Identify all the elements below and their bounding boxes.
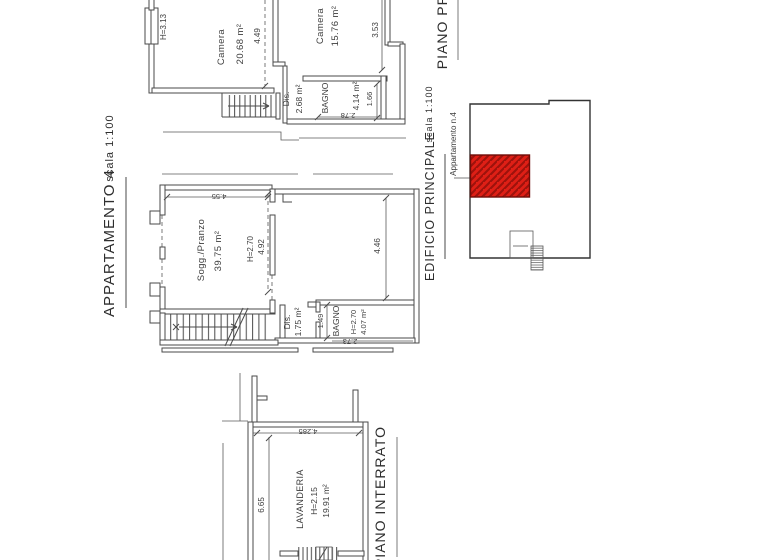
- room-bagno2-height: H=2.70: [349, 310, 358, 334]
- room-sogg-area: 39.75 m²: [213, 231, 224, 272]
- piano-interrato-heading: PIANO INTERRATO: [372, 426, 397, 560]
- dim-273: 2.73: [343, 337, 358, 346]
- floor-plan-sheet: APPARTAMENTO 4 scala 1:100 PIANO PRIMO: [0, 0, 768, 560]
- stair-housing: [510, 231, 533, 258]
- sheet-title: APPARTAMENTO 4 scala 1:100: [101, 114, 126, 317]
- dim-149: 1.49: [316, 314, 325, 329]
- floor-plan-drawing: APPARTAMENTO 4 scala 1:100 PIANO PRIMO: [0, 0, 768, 560]
- stairs-piano-primo: [222, 93, 280, 119]
- plan-piano-primo: Camera 20.68 m² H=3.13 4.49 Camera 15.76…: [145, 0, 406, 140]
- room-bagno2-name: BAGNO: [331, 305, 341, 336]
- dim-455: 4.55: [212, 192, 227, 201]
- room-lavanderia-height: H=2.15: [309, 487, 319, 515]
- room-lavanderia-name: LAVANDERIA: [295, 469, 305, 529]
- room-lavanderia-area: 19.91 m²: [321, 484, 331, 518]
- apartment-callout: Appartamento n.4: [449, 112, 458, 176]
- plan-piano-interrato: LAVANDERIA H=2.15 19.91 m² 6.65 4.285: [222, 373, 368, 560]
- dim-278: 2.78: [341, 111, 356, 120]
- dim-665: 6.65: [257, 497, 266, 513]
- edificio-title: EDIFICIO PRINCIPALE: [423, 131, 437, 281]
- dim-446: 4.46: [373, 238, 382, 254]
- room-bagno1-name: BAGNO: [320, 82, 330, 113]
- edificio-scale: scala 1:100: [424, 85, 434, 142]
- room-dis1-area: 2.68 m²: [294, 84, 304, 113]
- dim-449: 4.49: [253, 28, 262, 44]
- dim-353: 3.53: [371, 22, 380, 38]
- window-height-label: H=3.13: [159, 13, 168, 40]
- room-sogg-height: H=2.70: [246, 235, 255, 262]
- room-dis2-name: Dis.: [282, 315, 292, 330]
- dim-492: 4.92: [257, 239, 266, 255]
- room-dis1-name: Dis.: [281, 92, 291, 107]
- room-camera2-name: Camera: [315, 8, 326, 45]
- room-camera1-name: Camera: [216, 29, 227, 66]
- apartment-highlight: [471, 155, 530, 197]
- room-camera1-area: 20.68 m²: [235, 24, 246, 65]
- apartment-title: APPARTAMENTO 4: [101, 169, 118, 317]
- key-plan: EDIFICIO PRINCIPALE scala 1:100 Appartam…: [423, 85, 590, 281]
- building-exterior-stair: [531, 246, 543, 270]
- dim-166: 1.66: [365, 92, 374, 107]
- plan-middle-floor: Sogg./Pranzo 39.75 m² H=2.70 4.92 4.55 4…: [150, 174, 419, 352]
- stairs-piano-interrato: [280, 547, 364, 560]
- piano-primo-label: PIANO PRIMO: [434, 0, 450, 69]
- apartment-title-scale: scala 1:100: [104, 114, 116, 181]
- room-dis2-area: 1.75 m²: [293, 307, 303, 336]
- room-sogg-name: Sogg./Pranzo: [196, 219, 207, 281]
- room-bagno1-area: 4.14 m²: [351, 81, 361, 110]
- piano-primo-heading: PIANO PRIMO: [434, 0, 458, 69]
- piano-interrato-label: PIANO INTERRATO: [372, 426, 388, 560]
- dim-4285: 4.285: [299, 427, 318, 436]
- room-camera2-area: 15.76 m²: [330, 6, 341, 47]
- room-bagno2-area: 4.07 m²: [359, 309, 368, 335]
